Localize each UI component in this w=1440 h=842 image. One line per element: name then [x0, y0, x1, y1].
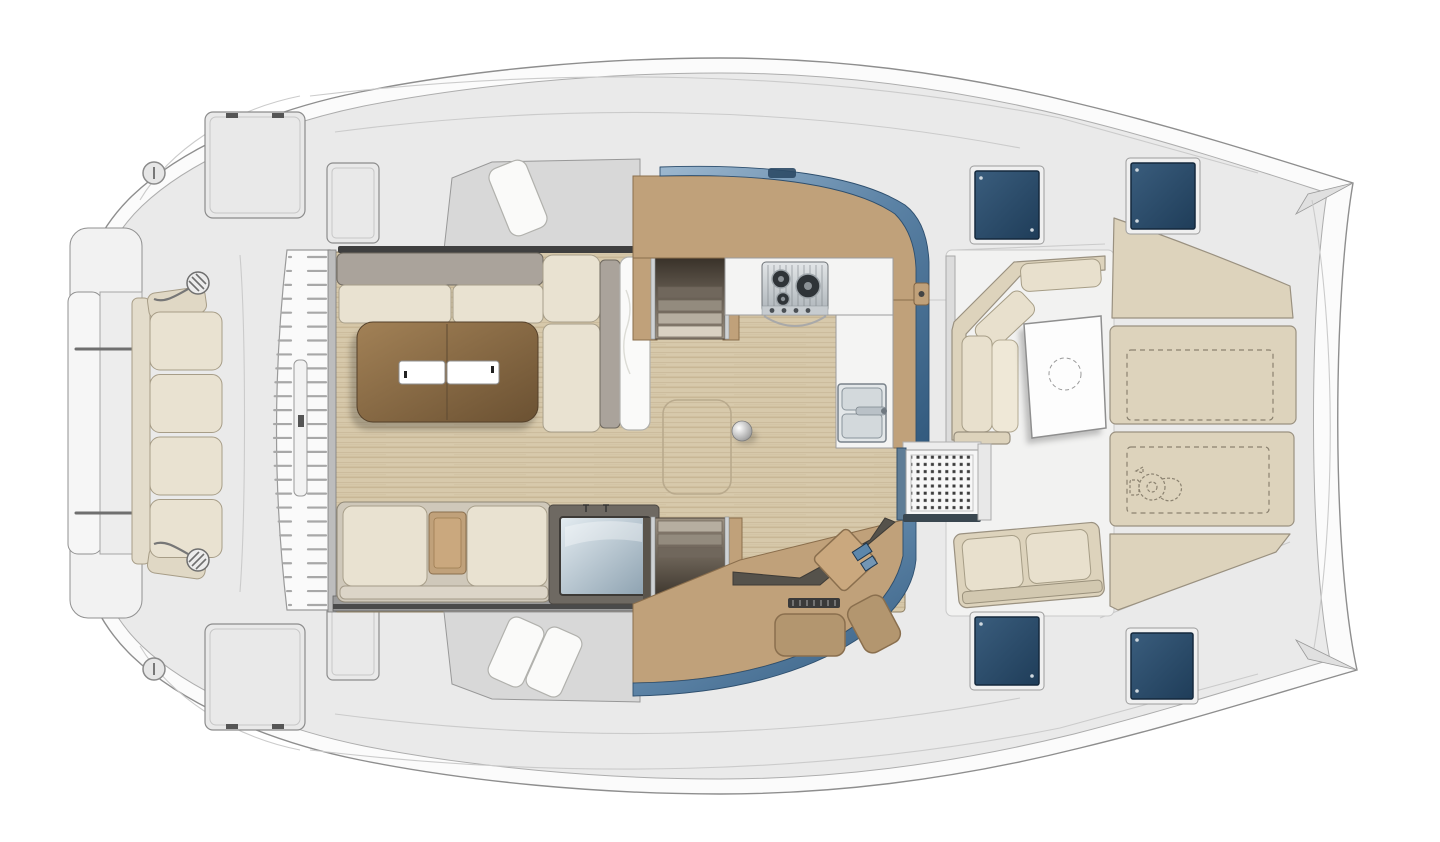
aft-bench-ledge [340, 586, 548, 599]
stairs-port-hull [633, 255, 739, 340]
bow-bench-cushion [150, 375, 222, 433]
bow-trampoline [274, 250, 330, 610]
cockpit-aft-bench [953, 522, 1105, 608]
sunbed-panel-2 [1110, 326, 1296, 424]
sofa-back-top [337, 253, 543, 285]
sink [838, 384, 887, 442]
corner-bench-seat [992, 340, 1018, 432]
coffee-table [350, 322, 538, 430]
sofa-corner-cushion [543, 255, 600, 322]
bow-bench-cushion [150, 500, 222, 558]
saloon-front-wall [328, 250, 336, 612]
bow-bench [132, 286, 222, 580]
mast-step-ball [732, 421, 752, 441]
starboard-stair-tread [658, 547, 722, 558]
sunbed-panel-3 [1110, 432, 1294, 526]
sunbed-group [1110, 218, 1296, 610]
aft-bench-cushion-1 [343, 506, 427, 586]
cockpit-aft-cushion-2 [1025, 529, 1091, 584]
port-stair-tread [658, 287, 722, 298]
aft-bench-cushion-2 [467, 506, 547, 586]
small-locker-port [327, 163, 379, 243]
bow-bench-cushion [150, 437, 222, 495]
door-mat [911, 455, 973, 511]
sofa-back-right [600, 260, 620, 428]
port-stair-tread [658, 326, 722, 337]
bow-platform-outer [68, 292, 102, 554]
starboard-stair-treads [658, 521, 722, 558]
door-track-left [897, 448, 906, 520]
nav-console-recess-1 [775, 614, 845, 656]
bow-bench-back [132, 298, 150, 564]
trampoline-spine-plate [294, 360, 307, 496]
deck-hatch-port-aft [970, 612, 1044, 690]
sofa-seat-2 [453, 285, 543, 323]
cockpit-table-top [1024, 316, 1106, 438]
sofa-chaise-seat [543, 324, 600, 432]
saloon-aft-bench [337, 502, 551, 602]
starboard-stair-tread [658, 534, 722, 545]
galley-hatch-in-band [768, 168, 796, 178]
sofa-seat-1 [339, 285, 451, 323]
door-frame-top [903, 442, 981, 450]
deck-locker-port [205, 112, 305, 218]
port-stair-tread [658, 300, 722, 311]
galley-surround-right [893, 300, 918, 448]
corner-bench-cushion-left [962, 336, 992, 432]
corner-bench-cushion-top [1020, 258, 1102, 292]
deck-locker-starboard [205, 624, 305, 730]
catamaran-deck-plan [0, 0, 1440, 842]
deck-hatch-port-forward [970, 166, 1044, 244]
doorway-group [897, 442, 991, 522]
port-stair-tread [658, 313, 722, 324]
cockpit-table [1019, 316, 1106, 444]
bow-bench-cushion [150, 312, 222, 370]
door-frame-right [978, 444, 991, 520]
deck-hatch-starboard-forward [1126, 158, 1200, 234]
deck-hatch-starboard-aft [1126, 628, 1198, 704]
sink-basin-2 [842, 414, 882, 438]
tv-cabinet [549, 505, 659, 604]
starboard-stair-tread [658, 521, 722, 532]
saloon-front-window-frame [338, 246, 640, 253]
cockpit-aft-cushion-1 [962, 535, 1024, 592]
deck-plan-stage [0, 0, 1440, 842]
door-track-bottom [903, 514, 981, 522]
